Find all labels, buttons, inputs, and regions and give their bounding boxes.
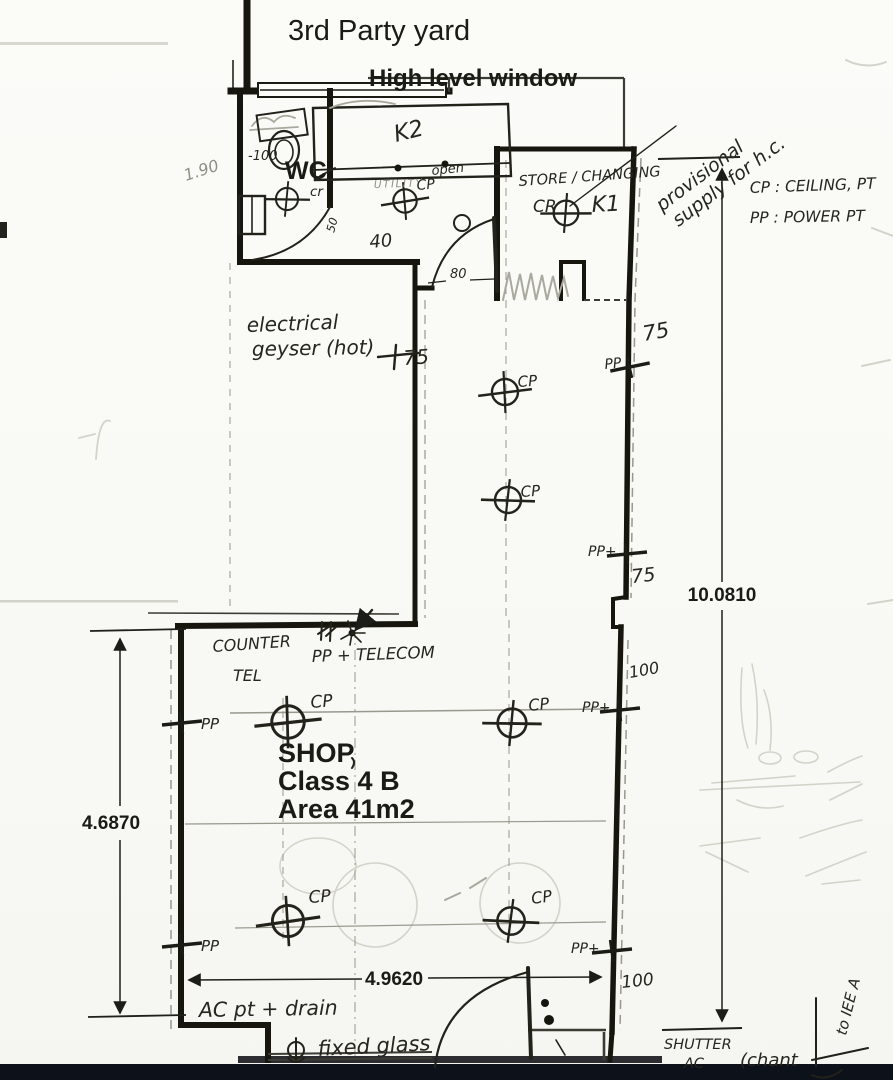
ac-drain-note: AC pt + drain [197,996,338,1022]
iee-note: to IEE A [832,976,864,1037]
right-wall-jog [613,597,626,627]
tel-note: TEL [233,666,262,685]
pencil-circle [333,863,417,947]
dim-50: 50 [323,216,340,234]
floor-plan-drawing: 3rd Party yard High level window WC SHOP… [0,0,893,1080]
cp-label-shop-4: CP [530,886,554,908]
dim-bottom-total: 4.9620 [365,969,423,990]
k1-label: K1 [591,192,621,218]
scan-mark [0,222,7,238]
shop-top-thin-line [148,613,399,614]
room-label-wc: WC [285,157,327,185]
pp-label-right-1: PP [604,355,623,373]
doors-fixtures [239,101,868,1078]
hatch-squiggle [503,272,568,300]
entrance-door-leaf [528,968,531,1058]
corner-note: to IEE A [832,976,864,1037]
pp-label-right-4: PP+ [571,941,600,957]
dim-75-right-mid: 75 [630,564,656,588]
shop-class-label: Class 4 B [278,766,400,796]
cp-label-shop-1: CP [310,691,335,713]
ink-mark [556,1040,565,1055]
counter-note: COUNTER [212,632,292,656]
legend-cp: CP : CEILING, PT [750,175,878,197]
dim-190: 1.90 [181,156,221,185]
pp-label-left-1: PP [201,715,220,733]
cp-label-corridor-1: CP [517,372,539,391]
ink-dot [541,999,549,1007]
dim-75-right-top: 75 [641,318,671,346]
legend-pp: PP : POWER PT [750,207,867,227]
dim-line-bottom-right [428,977,600,978]
room-label-shop: SHOP [278,738,355,768]
shutter-note-line1: SHUTTER [664,1037,732,1053]
dim-left-total: 4.6870 [82,813,140,834]
dim-right-total: 10.0810 [688,585,757,606]
cr-small-label: cr [310,184,324,200]
shutter-note-line2: AC [683,1056,705,1072]
cp-label-corridor-2: CP [520,482,542,501]
chant-note: (chant [740,1050,799,1071]
shop-bottom-step [181,1025,268,1060]
pencil-circle [280,838,356,894]
construction-lines [171,158,641,1058]
dim-40: 40 [369,230,394,253]
entrance-door-arc [435,972,528,1067]
k2-detail [313,163,510,176]
right-wall-foot [610,1032,612,1060]
pencil-doodle-right [700,664,866,884]
pencil-doodle-left [79,420,110,459]
guide-line [235,922,606,928]
geyser-note-line1: electrical [246,310,339,337]
cp-symbol-wc [263,180,311,219]
dim-tick-bottom-right [662,1028,742,1030]
pp-label-left-2: PP [201,937,220,955]
dim-80: 80 [450,267,467,282]
room-label-store: STORE / CHANGING [518,164,661,190]
scanned-floor-plan: 3rd Party yard High level window WC SHOP… [0,0,893,1080]
pencil-doodle-ellipse [794,751,818,763]
dim-100-right-bottom: 100 [620,970,654,993]
dim-line-bottom-left [190,979,362,980]
pp-telecom-note: PP + TELECOM [311,643,435,666]
scan-smudge [846,60,886,66]
wc-sink [257,109,308,141]
right-wall-lower [612,627,621,1032]
cr-label: CR [533,197,557,217]
cp-label-utility: CP [416,176,436,194]
scan-streak [0,600,178,603]
scan-streak [0,42,168,45]
ink-dot [544,1015,554,1025]
pp-label-right-2: PP+ [588,544,617,560]
door-knob-circle [454,215,470,231]
cp-label-shop-3: CP [308,886,332,908]
shop-top-wall [178,624,415,626]
high-level-window-label: High level window [369,65,577,92]
dim-75-corridor: 75 [403,344,430,370]
ink-dot [395,165,402,172]
shop-area-label: Area 41m2 [278,794,415,824]
entrance-side-wall [528,1030,606,1060]
k2-label: K2 [391,115,426,147]
geyser-note-line2: geyser (hot) [252,335,375,361]
walls [148,2,634,1060]
scan-smudge [862,228,893,604]
yard-label: 3rd Party yard [288,15,470,47]
dim-100-right-mid: 100 [627,658,660,682]
pp-label-right-3: PP+ [582,700,611,716]
pencil-doodle-ellipse [759,752,781,764]
dim-neg100: -100 [248,149,278,164]
cp-label-shop-2: CP [527,694,550,715]
